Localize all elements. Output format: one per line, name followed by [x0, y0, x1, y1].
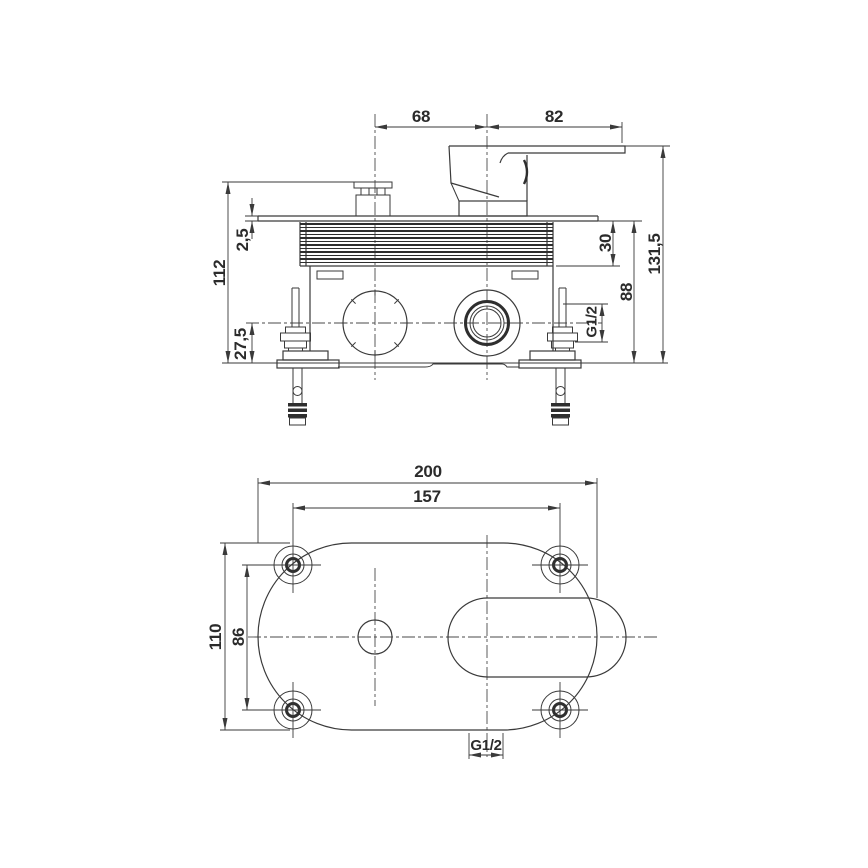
dim-27-5-label: 27,5: [231, 328, 250, 360]
thread-g12-side-label: G1/2: [583, 306, 600, 337]
mounting-plate: [258, 216, 598, 221]
dim-30-label: 30: [596, 234, 615, 252]
dim-68-label: 68: [412, 107, 430, 126]
mounting-hardware-left: [277, 288, 339, 425]
dim-2-5-label: 2,5: [233, 229, 252, 252]
dim-157-label: 157: [413, 487, 440, 506]
dim-88-label: 88: [617, 283, 636, 301]
foot-flange-left: [277, 360, 339, 368]
plan-view: 200 157 110 86 G1/2: [206, 462, 660, 759]
foot-flange-right: [519, 360, 581, 368]
dim-110-label: 110: [206, 624, 225, 651]
side-view: 68 82 112 2,5 27,5 30 88 131,5 G1/2: [210, 107, 670, 425]
foot-block-left: [283, 351, 328, 360]
dim-200-label: 200: [414, 462, 441, 481]
dim-86-label: 86: [229, 628, 248, 646]
handle-base: [459, 201, 527, 216]
side-view-labels: 68 82 112 2,5 27,5 30 88 131,5 G1/2: [210, 107, 664, 360]
valve-body: [310, 266, 553, 367]
mounting-hardware-right: [519, 288, 581, 425]
handle-cutout: [448, 598, 626, 677]
plan-view-dimensions: [220, 478, 597, 759]
dim-82-label: 82: [545, 107, 563, 126]
threaded-sleeve: [300, 222, 553, 266]
dim-112-label: 112: [210, 260, 229, 287]
cartridge-cap: [354, 182, 392, 216]
oval-plate-outline: [258, 543, 597, 730]
drawing-canvas: 68 82 112 2,5 27,5 30 88 131,5 G1/2: [0, 0, 868, 868]
thread-g12-plan-label: G1/2: [470, 737, 501, 754]
foot-block-right: [530, 351, 575, 360]
mounting-screw-top-right: [532, 537, 588, 593]
plan-centerlines: [248, 535, 660, 757]
dim-131-5-label: 131,5: [645, 233, 664, 274]
technical-drawing: 68 82 112 2,5 27,5 30 88 131,5 G1/2: [0, 0, 868, 868]
handle-lever: [449, 146, 625, 216]
